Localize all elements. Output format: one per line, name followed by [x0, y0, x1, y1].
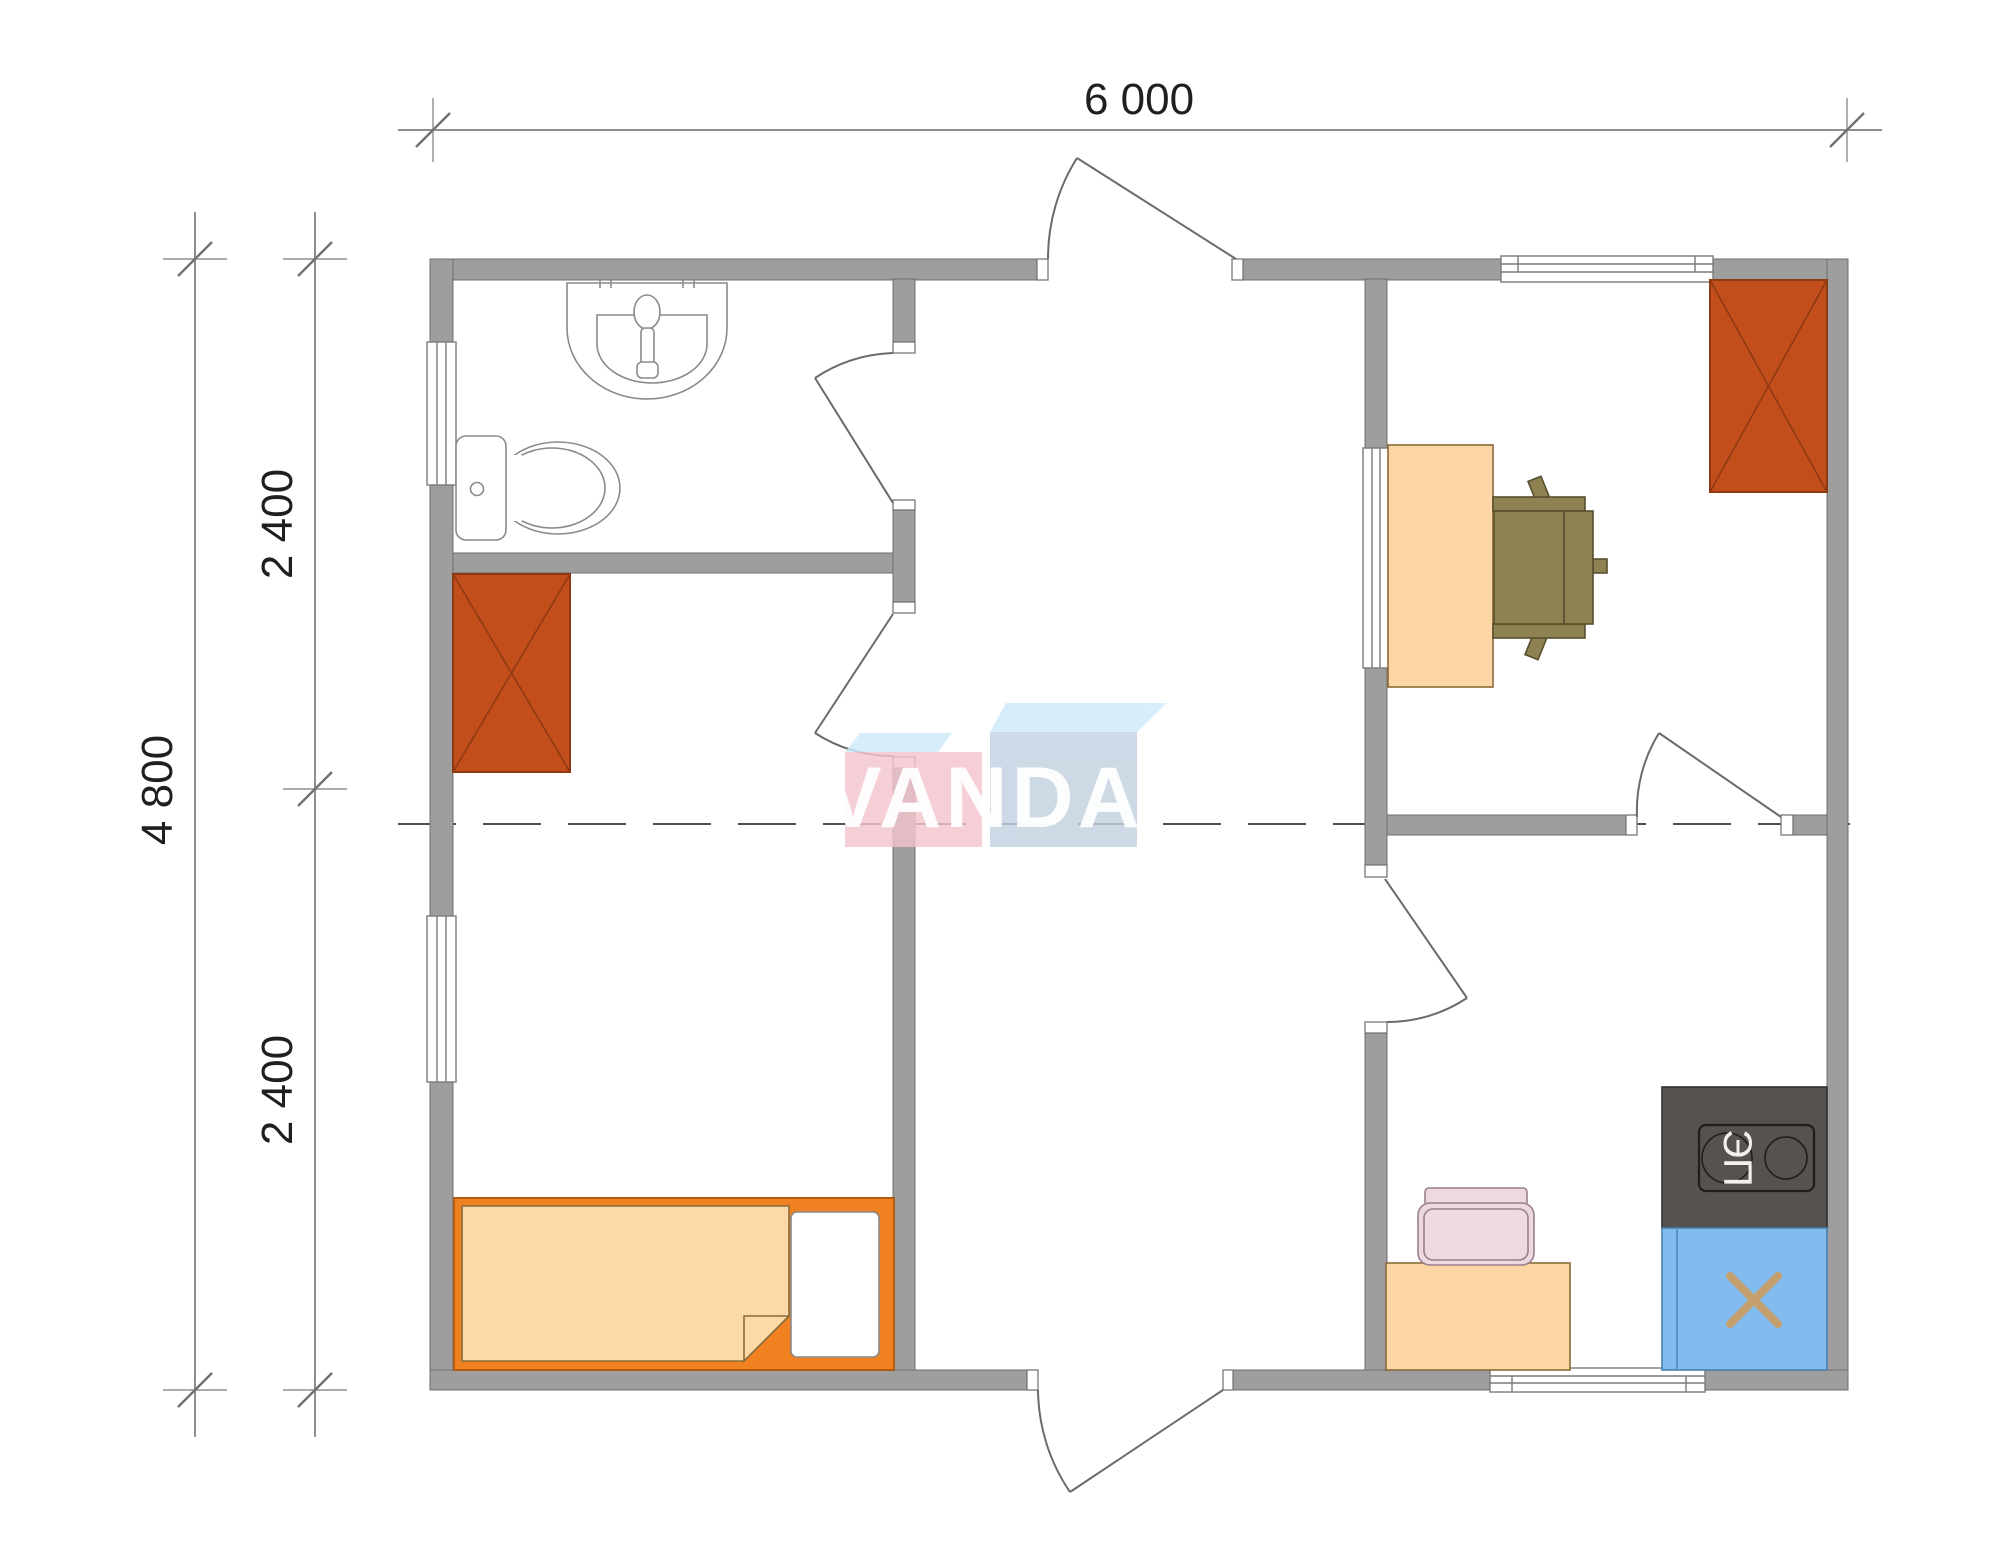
dimension-left-lower-label: 2 400 [253, 1035, 302, 1145]
wardrobe-bedroom [453, 574, 570, 772]
office-chair [1493, 476, 1607, 659]
pillow [791, 1212, 879, 1357]
kitchen-sink [1662, 1228, 1827, 1370]
window-left-lower [427, 916, 456, 1082]
study-door [1637, 733, 1781, 817]
floor-plan-drawing: 6 000 4 800 2 400 2 400 [0, 0, 2000, 1563]
desk [1388, 445, 1493, 687]
bathroom-sink [567, 280, 727, 399]
kitchen-table [1386, 1263, 1570, 1370]
window-bottom-right [1490, 1368, 1705, 1392]
dimension-left-split [283, 212, 347, 1437]
kitchen-door [1385, 879, 1467, 1022]
entrance-door [1048, 158, 1236, 259]
logo-bevel-right [990, 703, 1167, 732]
window-left-upper [427, 342, 456, 485]
toilet [456, 436, 620, 540]
dimension-top-label: 6 000 [1084, 75, 1194, 124]
window-top-right [1501, 256, 1713, 282]
bathroom-door [815, 353, 893, 503]
bed [454, 1198, 894, 1370]
floor-plan-page: 6 000 4 800 2 400 2 400 [0, 0, 2000, 1563]
stove-label: ЭП [1715, 1129, 1759, 1187]
back-door-bottom [1038, 1390, 1223, 1492]
dimension-left-upper-label: 2 400 [253, 469, 302, 579]
wardrobe-study [1710, 280, 1827, 492]
kitchen-chair [1418, 1188, 1534, 1265]
vanda-logo-text: VANDA [824, 750, 1143, 846]
window-interior-study [1363, 448, 1389, 668]
dimension-left-total-label: 4 800 [133, 735, 182, 845]
